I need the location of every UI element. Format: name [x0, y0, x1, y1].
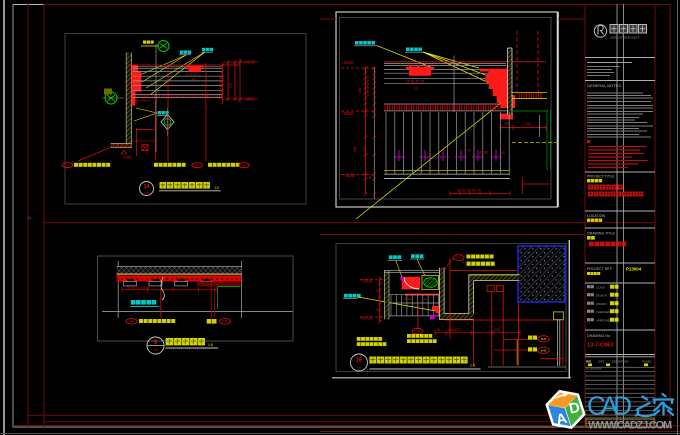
svg-text:60: 60 [505, 122, 509, 126]
svg-text:16: 16 [356, 358, 362, 364]
svg-text:40-50: 40-50 [479, 151, 488, 155]
svg-text:CAD: CAD [587, 391, 632, 421]
svg-text:P-01: P-01 [194, 164, 200, 167]
svg-text:50: 50 [375, 288, 379, 292]
svg-text:20 40 40 20: 20 40 40 20 [406, 80, 424, 84]
svg-text:500: 500 [353, 146, 357, 152]
svg-text:DATE: DATE [598, 361, 605, 364]
svg-text:1:8: 1:8 [357, 366, 362, 370]
svg-text:1:7.5: 1:7.5 [144, 191, 150, 195]
svg-text::: : [591, 140, 592, 144]
svg-text:270: 270 [363, 146, 367, 152]
svg-text:50 40 40 40 85: 50 40 40 40 85 [133, 98, 151, 102]
svg-text:DRAWING No.: DRAWING No. [587, 334, 611, 338]
svg-text:10: 10 [414, 87, 418, 91]
svg-text:200: 200 [494, 328, 500, 332]
svg-text:SIGNED: SIGNED [642, 361, 651, 364]
svg-text:+3850: +3850 [341, 111, 354, 116]
svg-text:10: 10 [424, 297, 428, 301]
svg-text:B-08: B-08 [541, 338, 547, 341]
svg-text:GENERAL NOTES:: GENERAL NOTES: [587, 83, 622, 88]
svg-text:1:8: 1:8 [208, 343, 213, 347]
svg-text:30: 30 [368, 176, 372, 180]
svg-text:P-01: P-01 [415, 330, 421, 333]
svg-text:50: 50 [375, 307, 379, 311]
svg-text:P-01: P-01 [65, 164, 71, 167]
svg-text:13-7-C063: 13-7-C063 [587, 343, 613, 349]
svg-text:A1 2014.03.08: A1 2014.03.08 [586, 368, 602, 371]
svg-text:P-01: P-01 [456, 256, 462, 259]
svg-text:B-08: B-08 [222, 320, 228, 323]
svg-text:DESIGN: DESIGN [596, 294, 607, 298]
svg-text:40 40: 40 40 [404, 297, 411, 301]
svg-text:DRAWN: DRAWN [596, 302, 606, 306]
svg-text:150: 150 [525, 122, 531, 126]
svg-text:75: 75 [436, 328, 440, 332]
svg-text:SCALE: SCALE [596, 286, 605, 290]
svg-text:10: 10 [192, 77, 196, 81]
svg-text:PROJECT TITLE: PROJECT TITLE [587, 175, 615, 179]
svg-text:B-08: B-08 [541, 350, 547, 353]
svg-text:LOCATION: LOCATION [587, 214, 606, 218]
svg-text:50 50 50 50 70: 50 50 50 50 70 [457, 189, 481, 193]
svg-text:+5950: +5950 [122, 155, 132, 159]
svg-text:440/670: 440/670 [448, 328, 461, 332]
svg-text:250: 250 [229, 82, 233, 88]
svg-text:50 50 50 50 70: 50 50 50 50 70 [127, 286, 150, 290]
svg-text:±0: ±0 [501, 151, 505, 155]
svg-text:250: 250 [358, 87, 362, 93]
svg-text:+3550: +3550 [343, 173, 356, 178]
svg-text:DESCRIPTION: DESCRIPTION [612, 361, 629, 364]
svg-text:+4100: +4100 [341, 60, 354, 65]
svg-text:APPROVED: APPROVED [596, 319, 612, 323]
svg-text:P-01: P-01 [241, 164, 247, 167]
svg-text:14: 14 [143, 184, 150, 190]
svg-text:WWW.CADZJ.COM: WWW.CADZJ.COM [588, 420, 672, 432]
svg-text:2050 40 40 40 20: 2050 40 40 40 20 [366, 75, 370, 96]
svg-text:14: 14 [27, 216, 31, 220]
svg-text:1:8: 1:8 [153, 348, 158, 352]
svg-text:CHECKED: CHECKED [596, 310, 610, 314]
svg-text:1:8: 1:8 [470, 364, 475, 368]
svg-text:ORSON INTERIOR DESIGN: ORSON INTERIOR DESIGN [610, 38, 640, 40]
svg-text:-10: -10 [466, 149, 471, 153]
svg-text:P13004: P13004 [626, 267, 642, 272]
svg-text:+2700: +2700 [360, 315, 373, 320]
svg-text:1:5: 1:5 [215, 186, 220, 190]
svg-text:P-01: P-01 [129, 320, 135, 323]
svg-text:DRAWING TITLE: DRAWING TITLE [587, 232, 616, 236]
svg-text:PROJECT REF.: PROJECT REF. [587, 267, 613, 271]
